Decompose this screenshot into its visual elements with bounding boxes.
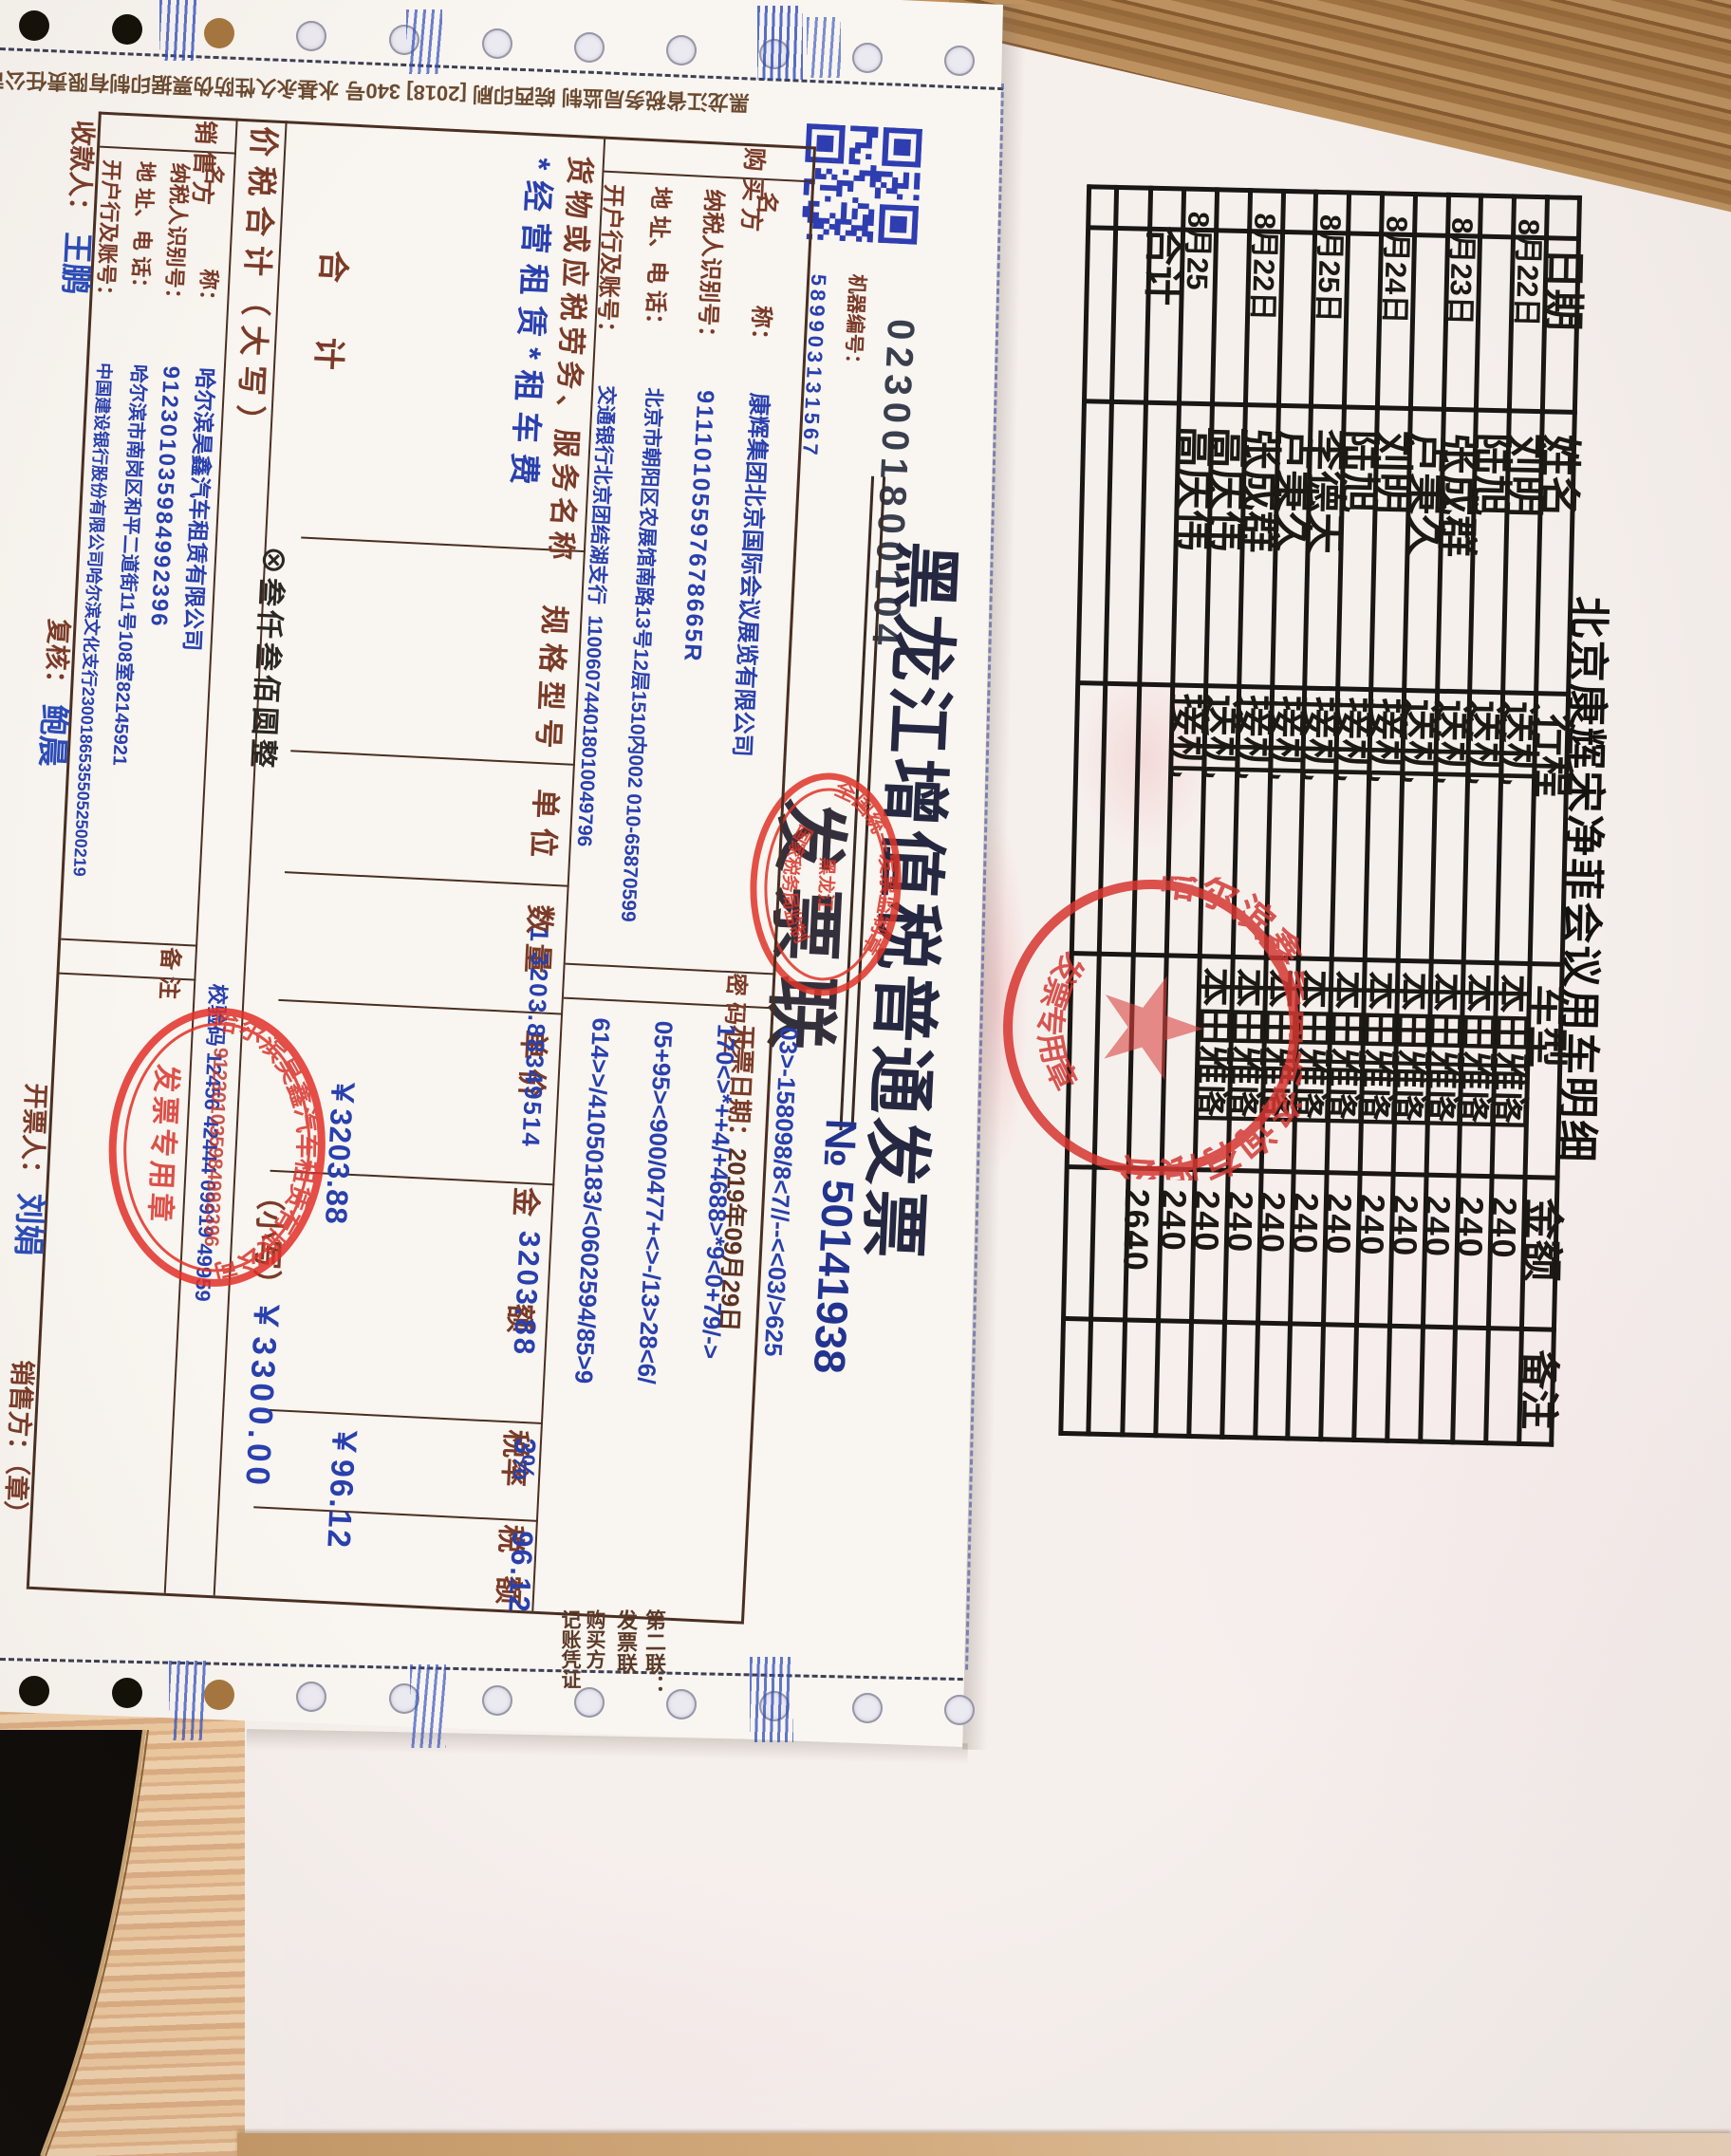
svg-text:黑龙江: 黑龙江 [814,857,839,912]
svg-text:发票专用章: 发票专用章 [143,1062,183,1225]
svg-text:发票专用章: 发票专用章 [1031,946,1090,1097]
svg-text:912301035984992396: 912301035984992396 [200,1047,232,1247]
svg-text:国家税务局监制: 国家税务局监制 [776,820,818,947]
